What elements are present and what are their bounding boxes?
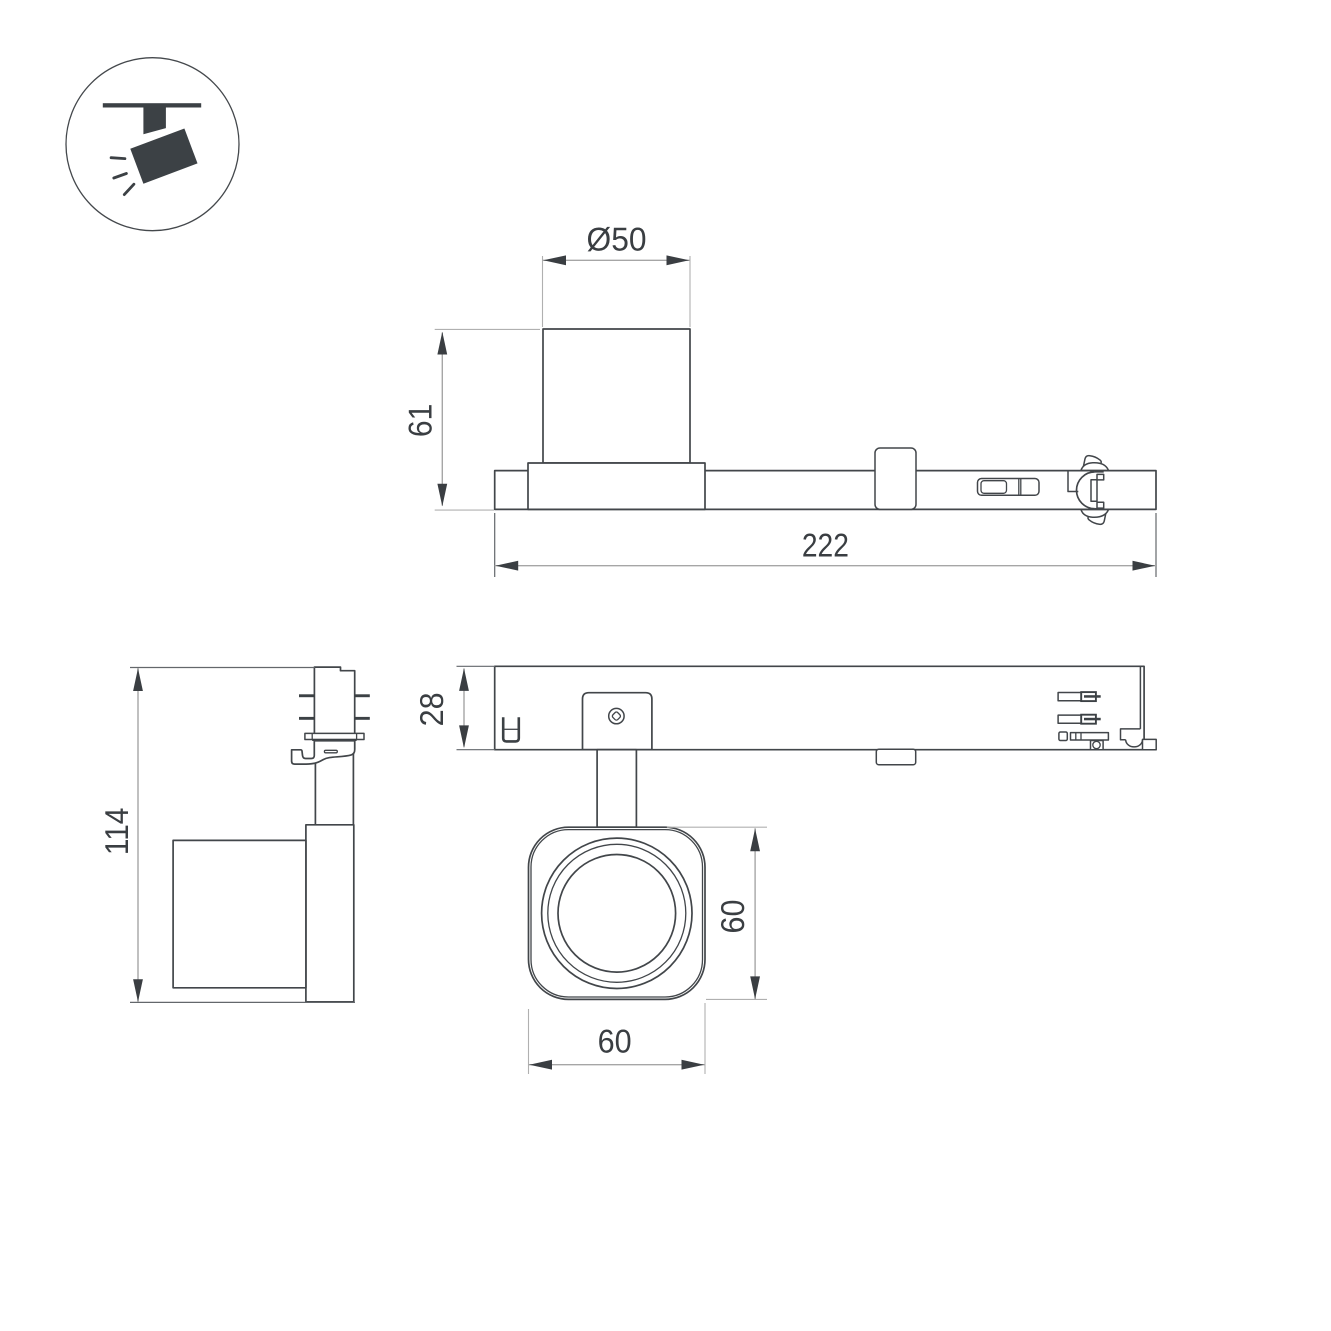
svg-text:Ø50: Ø50 <box>587 221 647 258</box>
svg-text:28: 28 <box>413 692 450 726</box>
svg-text:61: 61 <box>402 404 439 438</box>
svg-text:60: 60 <box>714 900 751 934</box>
svg-text:222: 222 <box>802 527 849 564</box>
svg-text:60: 60 <box>598 1023 632 1060</box>
svg-text:114: 114 <box>98 808 135 856</box>
